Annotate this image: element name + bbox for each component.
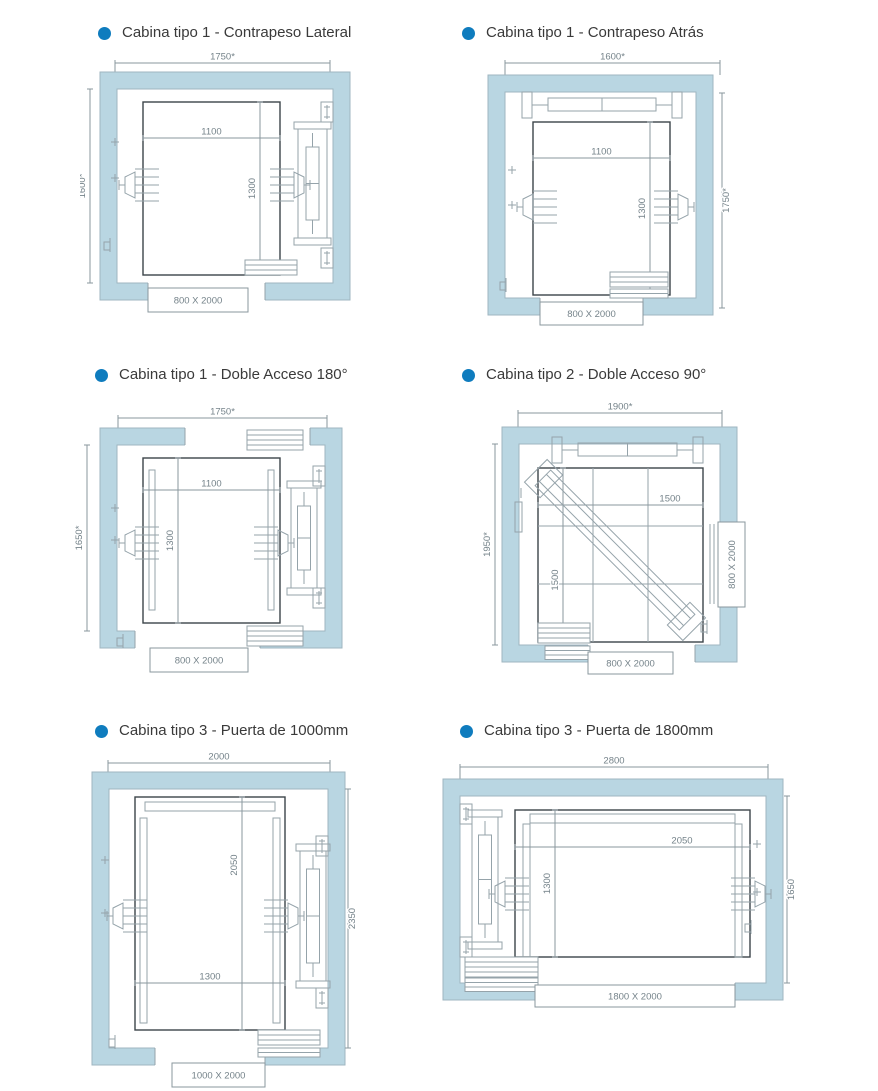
diagonal-counterweight: [524, 459, 705, 640]
cabin-outline: [135, 797, 285, 1030]
bullet-icon: [460, 725, 473, 738]
dimension: 1600*: [505, 52, 720, 76]
diagram-card-6: Cabina tipo 3 - Puerta de 1800mm 2800165…: [435, 720, 860, 1052]
dimension-label: 1300: [637, 198, 648, 219]
dimension: 2050: [515, 836, 750, 851]
elevator-plan-6: 28001650205013001800 X 2000: [435, 752, 855, 1052]
guide-rail-icon: [270, 169, 310, 201]
counterweight: [287, 481, 321, 595]
counterweight-bracket: [313, 588, 325, 608]
dimension-label: 1600*: [600, 52, 625, 63]
diagram-title-label: Cabina tipo 2 - Doble Acceso 90°: [486, 364, 706, 386]
elevator-plan-2: 1600*1750*11001300800 X 2000: [450, 50, 760, 342]
counterweight-bracket: [321, 102, 333, 122]
dimension: 1300: [165, 458, 181, 623]
shaft-wall: [92, 772, 345, 1066]
dimension: 1650*: [75, 445, 90, 631]
dimension: 1300: [637, 122, 653, 295]
counterweight: [522, 92, 682, 118]
diagram-card-4: Cabina tipo 2 - Doble Acceso 90° 1900*19…: [455, 364, 790, 702]
dimension-label: 1650*: [75, 525, 85, 550]
dimension: 2050: [229, 797, 245, 1030]
dimension-label: 1500: [550, 569, 561, 590]
diagram-title: Cabina tipo 1 - Contrapeso Atrás: [450, 22, 770, 44]
dimension: 2800: [460, 756, 768, 780]
dimension: 1100: [143, 479, 280, 494]
dimension-label: 1100: [201, 479, 221, 490]
dimension: 1750*: [719, 93, 732, 308]
door-dimension: 800 X 2000: [540, 302, 643, 325]
elevator-plan-1: 1750*1600*11001300800 X 2000: [80, 50, 370, 322]
counterweight-bracket: [460, 937, 472, 957]
elevator-plan-5: 20002350205013001000 X 2000: [85, 748, 395, 1091]
dimension-label: 1750*: [210, 407, 235, 418]
bullet-icon: [462, 27, 475, 40]
dimension-label: 1000 X 2000: [192, 1071, 246, 1082]
counterweight-bracket: [313, 466, 325, 486]
dimension-label: 1100: [201, 127, 221, 138]
diagram-card-5: Cabina tipo 3 - Puerta de 1000mm 2000235…: [85, 720, 400, 1091]
dimension: 1100: [533, 147, 670, 162]
counterweight: [468, 810, 502, 949]
dimension: 1300: [542, 810, 558, 957]
door-dimension: 800 X 2000: [150, 648, 248, 672]
dimension-label: 2800: [603, 756, 624, 767]
cross-mark: [753, 840, 761, 848]
counterweight: [294, 122, 331, 245]
door-sill: [538, 623, 590, 643]
dimension: 1750*: [118, 407, 327, 429]
diagram-title: Cabina tipo 1 - Doble Acceso 180°: [75, 364, 380, 386]
guide-rail-icon: [731, 878, 771, 910]
diagram-title-label: Cabina tipo 1 - Doble Acceso 180°: [119, 364, 348, 386]
door-sill: [465, 978, 538, 992]
dimension: 1950*: [482, 444, 498, 645]
counterweight-bracket: [316, 988, 328, 1008]
dimension-label: 1950*: [482, 532, 493, 557]
diagram-title-label: Cabina tipo 3 - Puerta de 1000mm: [119, 720, 348, 742]
dimension: 1600*: [80, 89, 93, 283]
dimension-label: 1300: [199, 972, 220, 983]
door-sill: [258, 1048, 320, 1057]
dimension-label: 1300: [165, 530, 176, 551]
diagram-card-1: Cabina tipo 1 - Contrapeso Lateral 1750*…: [80, 22, 380, 322]
diagram-title: Cabina tipo 3 - Puerta de 1800mm: [435, 720, 860, 742]
door-dimension: 800 X 2000: [148, 288, 248, 312]
diagram-title-label: Cabina tipo 1 - Contrapeso Atrás: [486, 22, 704, 44]
door-sill: [245, 260, 297, 275]
dimension: 2000: [108, 752, 330, 773]
dimension-label: 1300: [247, 178, 258, 199]
door-dimension: 1800 X 2000: [535, 985, 735, 1007]
guide-rail-icon: [119, 169, 159, 201]
guide-rail-icon: [654, 191, 694, 223]
dimension-label: 1300: [542, 873, 553, 894]
door-dimension: 1000 X 2000: [172, 1063, 265, 1087]
door-jamb-icon: [109, 1035, 115, 1049]
guide-rail-icon: [264, 900, 304, 932]
door-sill: [545, 646, 590, 660]
diagram-card-3: Cabina tipo 1 - Doble Acceso 180° 1750*1…: [75, 364, 380, 692]
cross-mark: [508, 166, 516, 174]
diagram-title: Cabina tipo 2 - Doble Acceso 90°: [455, 364, 790, 386]
dimension: 1100: [143, 127, 280, 142]
dimension-label: 800 X 2000: [174, 296, 223, 307]
dimension-label: 2000: [208, 752, 229, 763]
bullet-icon: [95, 369, 108, 382]
guide-rail-icon: [517, 191, 557, 223]
dimension-label: 1600*: [80, 173, 88, 198]
diagram-card-2: Cabina tipo 1 - Contrapeso Atrás 1600*17…: [450, 22, 770, 342]
diagram-title: Cabina tipo 3 - Puerta de 1000mm: [85, 720, 400, 742]
dimension-label: 1750*: [210, 52, 235, 63]
counterweight-bracket: [321, 248, 333, 268]
bullet-icon: [462, 369, 475, 382]
elevator-plan-4: 1900*1950*15001500800 X 2000800 X 2000: [455, 390, 785, 702]
door-sill: [465, 957, 538, 977]
dimension-label: 800 X 2000: [727, 540, 738, 589]
door-dimension: 800 X 2000: [718, 522, 745, 607]
diagram-title-label: Cabina tipo 1 - Contrapeso Lateral: [122, 22, 351, 44]
bullet-icon: [98, 27, 111, 40]
dimension-label: 800 X 2000: [175, 656, 224, 667]
dimension-label: 2050: [671, 836, 692, 847]
bullet-icon: [95, 725, 108, 738]
dimension-label: 2050: [229, 854, 240, 875]
shaft-wall: [100, 72, 350, 301]
elevator-plan-3: 1750*1650*11001300800 X 2000: [75, 390, 375, 692]
dimension-label: 1100: [591, 147, 611, 158]
door-sill: [610, 289, 668, 298]
dimension: 1900*: [518, 402, 722, 428]
diagram-title-label: Cabina tipo 3 - Puerta de 1800mm: [484, 720, 713, 742]
guide-rail-icon: [119, 527, 159, 559]
cross-mark: [753, 888, 761, 896]
dimension-label: 1750*: [721, 188, 732, 213]
dimension-label: 1900*: [608, 402, 633, 413]
dimension: 1750*: [115, 52, 330, 73]
diagram-title: Cabina tipo 1 - Contrapeso Lateral: [80, 22, 380, 44]
dimension-label: 1800 X 2000: [608, 992, 662, 1003]
guide-rail-icon: [107, 900, 147, 932]
door-sill: [610, 272, 668, 287]
dimension: 1300: [135, 972, 285, 987]
dimension-label: 800 X 2000: [606, 659, 655, 670]
dimension: 2350: [345, 789, 358, 1048]
door-sill: [258, 1030, 320, 1045]
dimension: 1300: [247, 102, 263, 275]
dimension-label: 1500: [659, 494, 680, 505]
elevator-layouts-page: Cabina tipo 1 - Contrapeso Lateral 1750*…: [0, 0, 878, 1091]
cross-mark: [508, 201, 516, 209]
dimension: 1650: [784, 796, 797, 983]
door-sill: [247, 626, 303, 646]
dimension-label: 800 X 2000: [567, 309, 616, 320]
door-dimension: 800 X 2000: [588, 652, 673, 674]
door-sill: [247, 430, 303, 450]
counterweight-bracket: [460, 804, 472, 824]
dimension-label: 1650: [786, 879, 797, 900]
dimension-label: 2350: [347, 908, 358, 929]
